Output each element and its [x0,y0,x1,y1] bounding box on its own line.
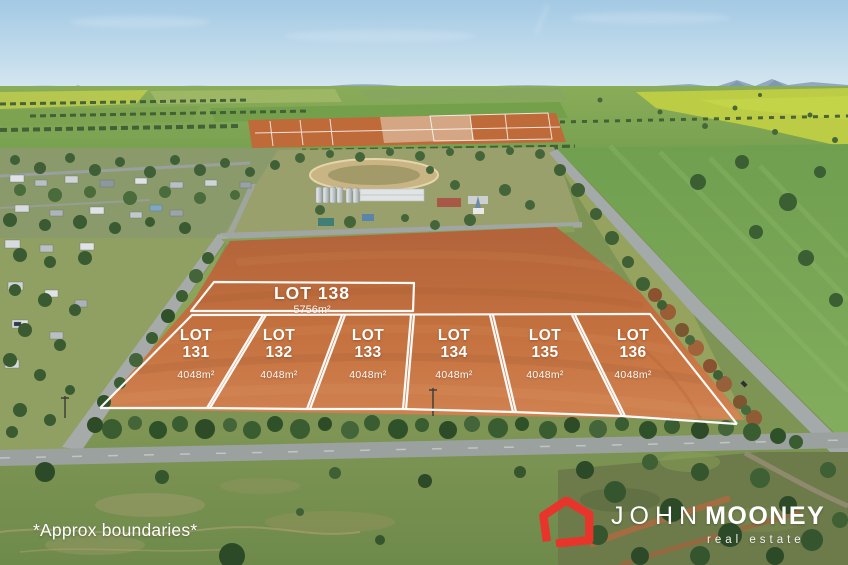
lot-138-name: LOT 138 [256,284,368,302]
aerial-scene [0,0,848,565]
sky [0,0,848,96]
red-shed [437,198,461,207]
lot-133-area: 4048m² [339,369,397,381]
lot-132-area: 4048m² [250,369,308,381]
lot-132-label: LOT 132 4048m² [250,327,308,381]
lot-132-name: LOT 132 [250,327,308,362]
lot-138-area: 5756m² [256,304,368,316]
logo-tagline: real estate [707,534,805,546]
lot-131-area: 4048m² [167,369,225,381]
lot-133-name: LOT 133 [339,327,397,362]
car [740,380,747,387]
house-icon [539,497,595,547]
logo-name-bold: MOONEY [705,502,825,530]
lot-138-label: LOT 138 5756m² [256,284,368,316]
lot-135-label: LOT 135 4048m² [516,327,574,381]
logo-name-light: JOHN [611,502,703,530]
aerial-subdivision-photo: LOT 138 5756m² LOT 131 4048m² LOT 132 40… [0,0,848,565]
lot-135-name: LOT 135 [516,327,574,362]
lot-135-area: 4048m² [516,369,574,381]
lot-131-label: LOT 131 4048m² [167,327,225,381]
lot-136-area: 4048m² [604,369,662,381]
lot-133-label: LOT 133 4048m² [339,327,397,381]
lot-134-area: 4048m² [425,369,483,381]
lot-134-label: LOT 134 4048m² [425,327,483,381]
logo-wordmark: JOHNMOONEY [611,502,825,531]
lot-134-name: LOT 134 [425,327,483,362]
john-mooney-logo: JOHNMOONEY real estate [539,494,844,556]
lot-136-name: LOT 136 [604,327,662,362]
lot-131-name: LOT 131 [167,327,225,362]
approx-boundaries-watermark: *Approx boundaries* [33,520,197,541]
lot-136-label: LOT 136 4048m² [604,327,662,381]
